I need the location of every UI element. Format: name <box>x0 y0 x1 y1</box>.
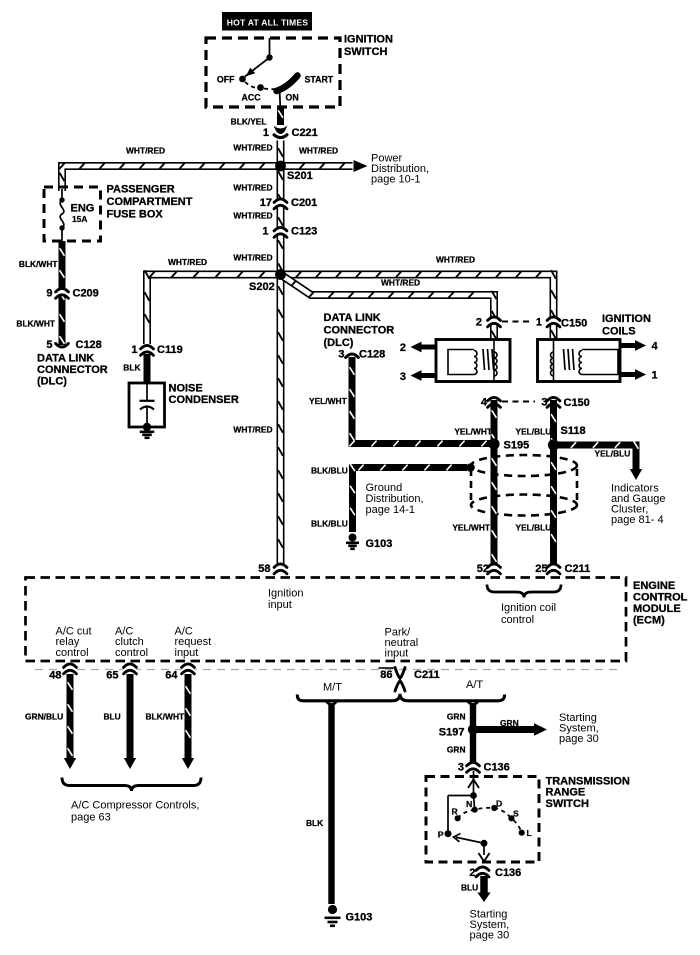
svg-text:YEL/BLU: YEL/BLU <box>595 449 631 459</box>
svg-text:C150: C150 <box>561 318 587 330</box>
svg-text:Ignition: Ignition <box>268 588 303 600</box>
svg-text:control: control <box>501 614 534 626</box>
svg-text:(DLC): (DLC) <box>37 376 67 388</box>
svg-text:OFF: OFF <box>217 75 235 85</box>
svg-text:BLK/WHT: BLK/WHT <box>146 712 185 722</box>
svg-text:GRN: GRN <box>500 718 519 728</box>
svg-text:START: START <box>305 75 334 85</box>
svg-text:COMPARTMENT: COMPARTMENT <box>107 196 193 208</box>
svg-text:52: 52 <box>477 563 489 575</box>
svg-text:3: 3 <box>400 371 406 383</box>
svg-text:RANGE: RANGE <box>546 787 586 799</box>
svg-text:(ECM): (ECM) <box>633 615 665 627</box>
svg-text:9: 9 <box>46 288 52 300</box>
svg-text:ENG: ENG <box>71 203 95 215</box>
svg-text:control: control <box>115 647 148 659</box>
svg-text:2: 2 <box>469 867 475 879</box>
svg-text:C128: C128 <box>76 339 102 351</box>
svg-text:YEL/BLU: YEL/BLU <box>516 523 552 533</box>
svg-text:D: D <box>496 799 502 809</box>
svg-text:COILS: COILS <box>602 326 636 338</box>
svg-text:3: 3 <box>541 397 547 409</box>
svg-text:CONNECTOR: CONNECTOR <box>37 364 108 376</box>
svg-text:2: 2 <box>400 342 406 354</box>
svg-text:WHT/RED: WHT/RED <box>436 255 475 265</box>
svg-text:64: 64 <box>165 670 178 682</box>
svg-text:A/C Compressor Controls,: A/C Compressor Controls, <box>71 800 199 812</box>
svg-text:YEL/WHT: YEL/WHT <box>309 396 348 406</box>
svg-text:SWITCH: SWITCH <box>546 798 589 810</box>
svg-text:48: 48 <box>49 670 61 682</box>
svg-text:input: input <box>268 599 292 611</box>
svg-text:C211: C211 <box>414 669 440 681</box>
svg-text:86: 86 <box>380 669 392 681</box>
svg-text:WHT/RED: WHT/RED <box>126 146 165 156</box>
svg-text:2: 2 <box>476 317 482 329</box>
svg-text:17: 17 <box>260 197 272 209</box>
svg-text:PASSENGER: PASSENGER <box>107 184 175 196</box>
svg-text:ENGINE: ENGINE <box>633 580 675 592</box>
svg-text:1: 1 <box>536 317 542 329</box>
svg-text:IGNITION: IGNITION <box>344 34 393 46</box>
svg-text:NOISE: NOISE <box>169 383 203 395</box>
svg-text:YEL/BLU: YEL/BLU <box>516 427 552 437</box>
svg-text:15A: 15A <box>72 214 87 224</box>
svg-text:MODULE: MODULE <box>633 603 681 615</box>
svg-text:FUSE BOX: FUSE BOX <box>107 209 164 221</box>
svg-text:BLK/YEL: BLK/YEL <box>231 117 267 127</box>
svg-text:BLU: BLU <box>104 712 121 722</box>
svg-text:N: N <box>466 799 472 809</box>
svg-text:G103: G103 <box>346 912 373 924</box>
svg-text:P: P <box>438 830 444 840</box>
svg-text:C221: C221 <box>292 127 318 139</box>
svg-text:page 10-1: page 10-1 <box>371 173 421 185</box>
svg-text:WHT/RED: WHT/RED <box>381 278 420 288</box>
svg-text:G103: G103 <box>366 538 393 550</box>
svg-text:C211: C211 <box>565 563 591 575</box>
svg-text:(DLC): (DLC) <box>324 337 354 349</box>
svg-text:1: 1 <box>263 127 269 139</box>
svg-text:1: 1 <box>652 370 658 382</box>
svg-text:S197: S197 <box>439 727 465 739</box>
svg-text:GRN: GRN <box>447 745 466 755</box>
svg-text:Ignition coil: Ignition coil <box>501 602 556 614</box>
svg-text:DATA LINK: DATA LINK <box>37 353 94 365</box>
svg-text:SWITCH: SWITCH <box>344 46 387 58</box>
svg-text:S: S <box>513 809 519 819</box>
svg-text:1: 1 <box>131 344 137 356</box>
svg-text:C201: C201 <box>291 197 317 209</box>
svg-text:1: 1 <box>262 226 268 238</box>
svg-text:S195: S195 <box>504 440 530 452</box>
svg-text:BLK/WHT: BLK/WHT <box>19 259 58 269</box>
svg-text:A/T: A/T <box>466 679 483 691</box>
svg-text:GRN: GRN <box>447 712 466 722</box>
svg-text:5: 5 <box>46 339 52 351</box>
svg-text:ACC: ACC <box>242 93 262 103</box>
svg-text:WHT/RED: WHT/RED <box>233 425 272 435</box>
svg-text:WHT/RED: WHT/RED <box>168 257 207 267</box>
svg-text:WHT/RED: WHT/RED <box>233 211 272 221</box>
svg-text:ON: ON <box>286 93 299 103</box>
svg-text:input: input <box>175 647 199 659</box>
svg-text:CONDENSER: CONDENSER <box>169 394 239 406</box>
svg-text:BLK/WHT: BLK/WHT <box>16 319 55 329</box>
svg-text:65: 65 <box>106 670 118 682</box>
svg-text:BLK: BLK <box>123 363 140 373</box>
svg-text:L: L <box>527 828 532 838</box>
svg-text:R: R <box>452 807 459 817</box>
svg-text:M/T: M/T <box>323 682 342 694</box>
svg-text:C123: C123 <box>291 226 317 238</box>
svg-text:YEL/WHT: YEL/WHT <box>454 427 493 437</box>
svg-text:C136: C136 <box>484 762 510 774</box>
svg-text:WHT/RED: WHT/RED <box>299 146 338 156</box>
svg-text:C150: C150 <box>564 397 590 409</box>
svg-text:control: control <box>56 647 89 659</box>
svg-text:C136: C136 <box>495 867 521 879</box>
svg-text:page 81- 4: page 81- 4 <box>611 514 664 526</box>
svg-text:page 30: page 30 <box>470 930 510 942</box>
svg-text:3: 3 <box>458 762 464 774</box>
svg-text:input: input <box>385 648 409 660</box>
svg-text:BLK/BLU: BLK/BLU <box>311 466 348 476</box>
svg-text:58: 58 <box>258 563 270 575</box>
svg-text:4: 4 <box>481 397 488 409</box>
svg-text:CONTROL: CONTROL <box>633 592 688 604</box>
svg-text:C209: C209 <box>73 288 99 300</box>
svg-text:BLU: BLU <box>461 883 478 893</box>
svg-text:WHT/RED: WHT/RED <box>233 183 272 193</box>
svg-text:TRANSMISSION: TRANSMISSION <box>546 776 630 788</box>
svg-text:CONNECTOR: CONNECTOR <box>324 325 395 337</box>
svg-text:WHT/RED: WHT/RED <box>233 253 272 263</box>
svg-text:page 14-1: page 14-1 <box>366 504 416 516</box>
svg-text:25: 25 <box>535 563 547 575</box>
svg-text:HOT AT ALL TIMES: HOT AT ALL TIMES <box>227 18 309 28</box>
svg-text:BLK/BLU: BLK/BLU <box>311 519 348 529</box>
svg-text:GRN/BLU: GRN/BLU <box>25 712 63 722</box>
svg-text:C119: C119 <box>157 344 183 356</box>
svg-text:IGNITION: IGNITION <box>602 313 651 325</box>
svg-text:C128: C128 <box>359 349 385 361</box>
svg-text:WHT/RED: WHT/RED <box>233 143 272 153</box>
svg-text:S202: S202 <box>249 281 275 293</box>
svg-text:3: 3 <box>338 349 344 361</box>
svg-text:S201: S201 <box>287 170 313 182</box>
svg-text:page 30: page 30 <box>559 733 599 745</box>
svg-text:S118: S118 <box>561 425 586 437</box>
svg-text:page 63: page 63 <box>71 812 111 824</box>
svg-text:YEL/WHT: YEL/WHT <box>452 523 491 533</box>
svg-text:BLK: BLK <box>306 818 323 828</box>
svg-text:4: 4 <box>652 341 659 353</box>
svg-text:DATA LINK: DATA LINK <box>324 312 381 324</box>
